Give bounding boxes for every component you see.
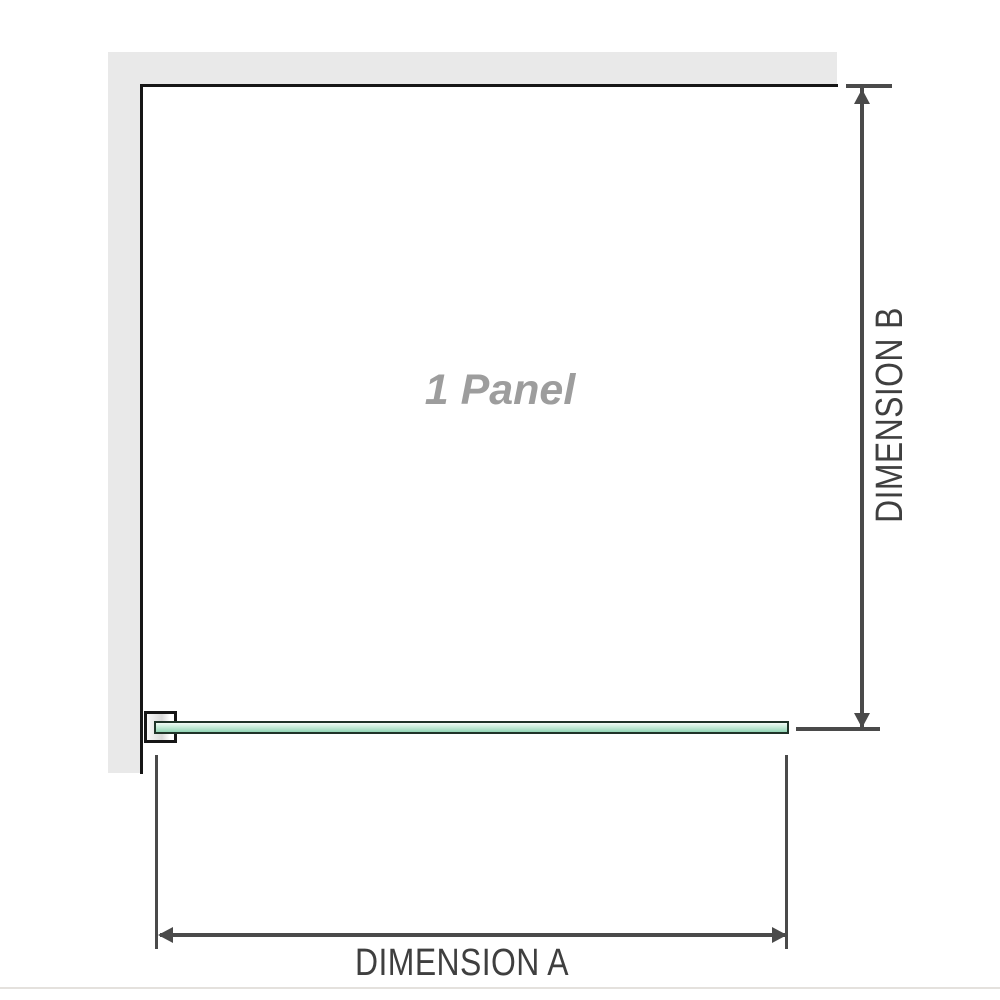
dimension-a-line <box>160 933 786 937</box>
wall-inner-edge-top-line <box>140 84 838 87</box>
arrow-right-icon <box>772 927 787 943</box>
arrow-down-icon <box>854 713 870 728</box>
wall-inner-edge-left-line <box>140 84 143 774</box>
dimension-b-top-cap <box>846 84 892 88</box>
arrow-up-icon <box>854 89 870 104</box>
dimension-a-extension-line-left <box>155 755 158 949</box>
dimension-b-line <box>860 87 864 728</box>
panel-count-label: 1 Panel <box>350 366 650 415</box>
dimension-a-extension-line-right <box>785 755 788 949</box>
wall-top <box>108 52 837 84</box>
arrow-left-icon <box>158 927 173 943</box>
page-baseline <box>0 987 1000 989</box>
wall-left <box>108 52 140 773</box>
dimension-diagram: 1 Panel DIMENSION B DIMENSION A <box>0 0 1000 1000</box>
dimension-a-label: DIMENSION A <box>336 942 588 985</box>
glass-panel <box>154 721 789 734</box>
dimension-b-label: DIMENSION B <box>870 306 910 524</box>
